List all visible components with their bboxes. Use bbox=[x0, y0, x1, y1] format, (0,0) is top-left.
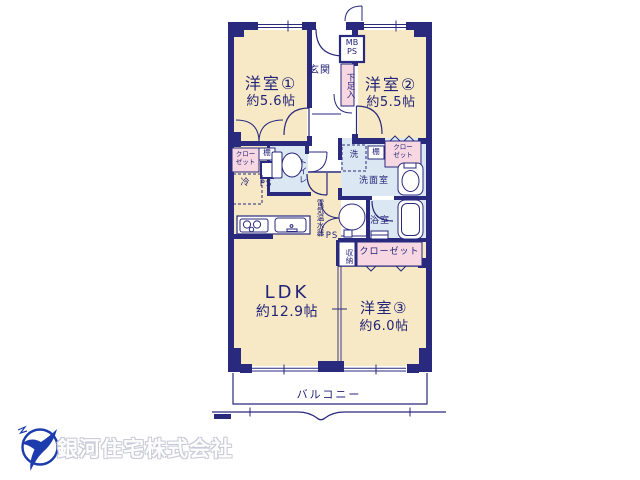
shelf2-label: 棚 bbox=[368, 148, 384, 156]
pipe-space-box bbox=[261, 162, 273, 178]
room2-size-label: 約5.5帖 bbox=[352, 96, 430, 110]
storage-label: 収納 bbox=[341, 245, 353, 267]
room2-label: 洋室② bbox=[352, 77, 430, 94]
shoe-box-label: 下足入 bbox=[342, 67, 354, 105]
ldk-size-label: 約12.9帖 bbox=[227, 305, 347, 320]
closet2-label-line2: ゼット bbox=[385, 152, 421, 159]
bathroom-counter-icon bbox=[371, 231, 388, 239]
pipe-space2-label: PS bbox=[320, 232, 344, 241]
room1-label: 洋室① bbox=[231, 76, 311, 93]
room3-label: 洋室③ bbox=[342, 301, 426, 317]
meterbox-ps-label: PS bbox=[340, 48, 364, 56]
window-room3-bottom bbox=[344, 365, 406, 375]
window-room1-top bbox=[258, 21, 302, 32]
closet3-label: クローゼット bbox=[357, 248, 422, 257]
pipe-space-label: PS bbox=[253, 180, 279, 189]
balcony-label: バルコニー bbox=[277, 389, 381, 401]
window-room2-top bbox=[364, 21, 406, 32]
ldk-label: LDK bbox=[237, 284, 337, 303]
washroom-label: 洗面室 bbox=[344, 177, 404, 186]
meterbox-door-arc bbox=[345, 6, 362, 21]
bathtub-icon bbox=[398, 200, 423, 239]
room1-size-label: 約5.6帖 bbox=[231, 95, 311, 109]
room3-size-label: 約6.0帖 bbox=[342, 320, 426, 334]
balcony-scallop-edge bbox=[212, 412, 446, 420]
entrance-label: 玄関 bbox=[302, 66, 338, 77]
washer-label: 洗 bbox=[342, 151, 366, 160]
window-ldk-bottom bbox=[252, 365, 318, 375]
company-logo bbox=[18, 427, 58, 471]
shelf1-label: 棚 bbox=[259, 149, 275, 157]
logo-accent-mark bbox=[18, 427, 27, 433]
company-name: 銀河住宅株式会社 bbox=[57, 433, 257, 463]
closet1-label-line2: ゼット bbox=[232, 159, 259, 166]
toilet-label: トイレ bbox=[294, 151, 306, 191]
floorplan-page: 洋室① 約5.6帖 洋室② 約5.5帖 LDK 約12.9帖 洋室③ 約6.0帖… bbox=[0, 0, 640, 480]
bathroom-label: 浴室 bbox=[366, 217, 394, 226]
kitchen-counter bbox=[237, 216, 310, 234]
